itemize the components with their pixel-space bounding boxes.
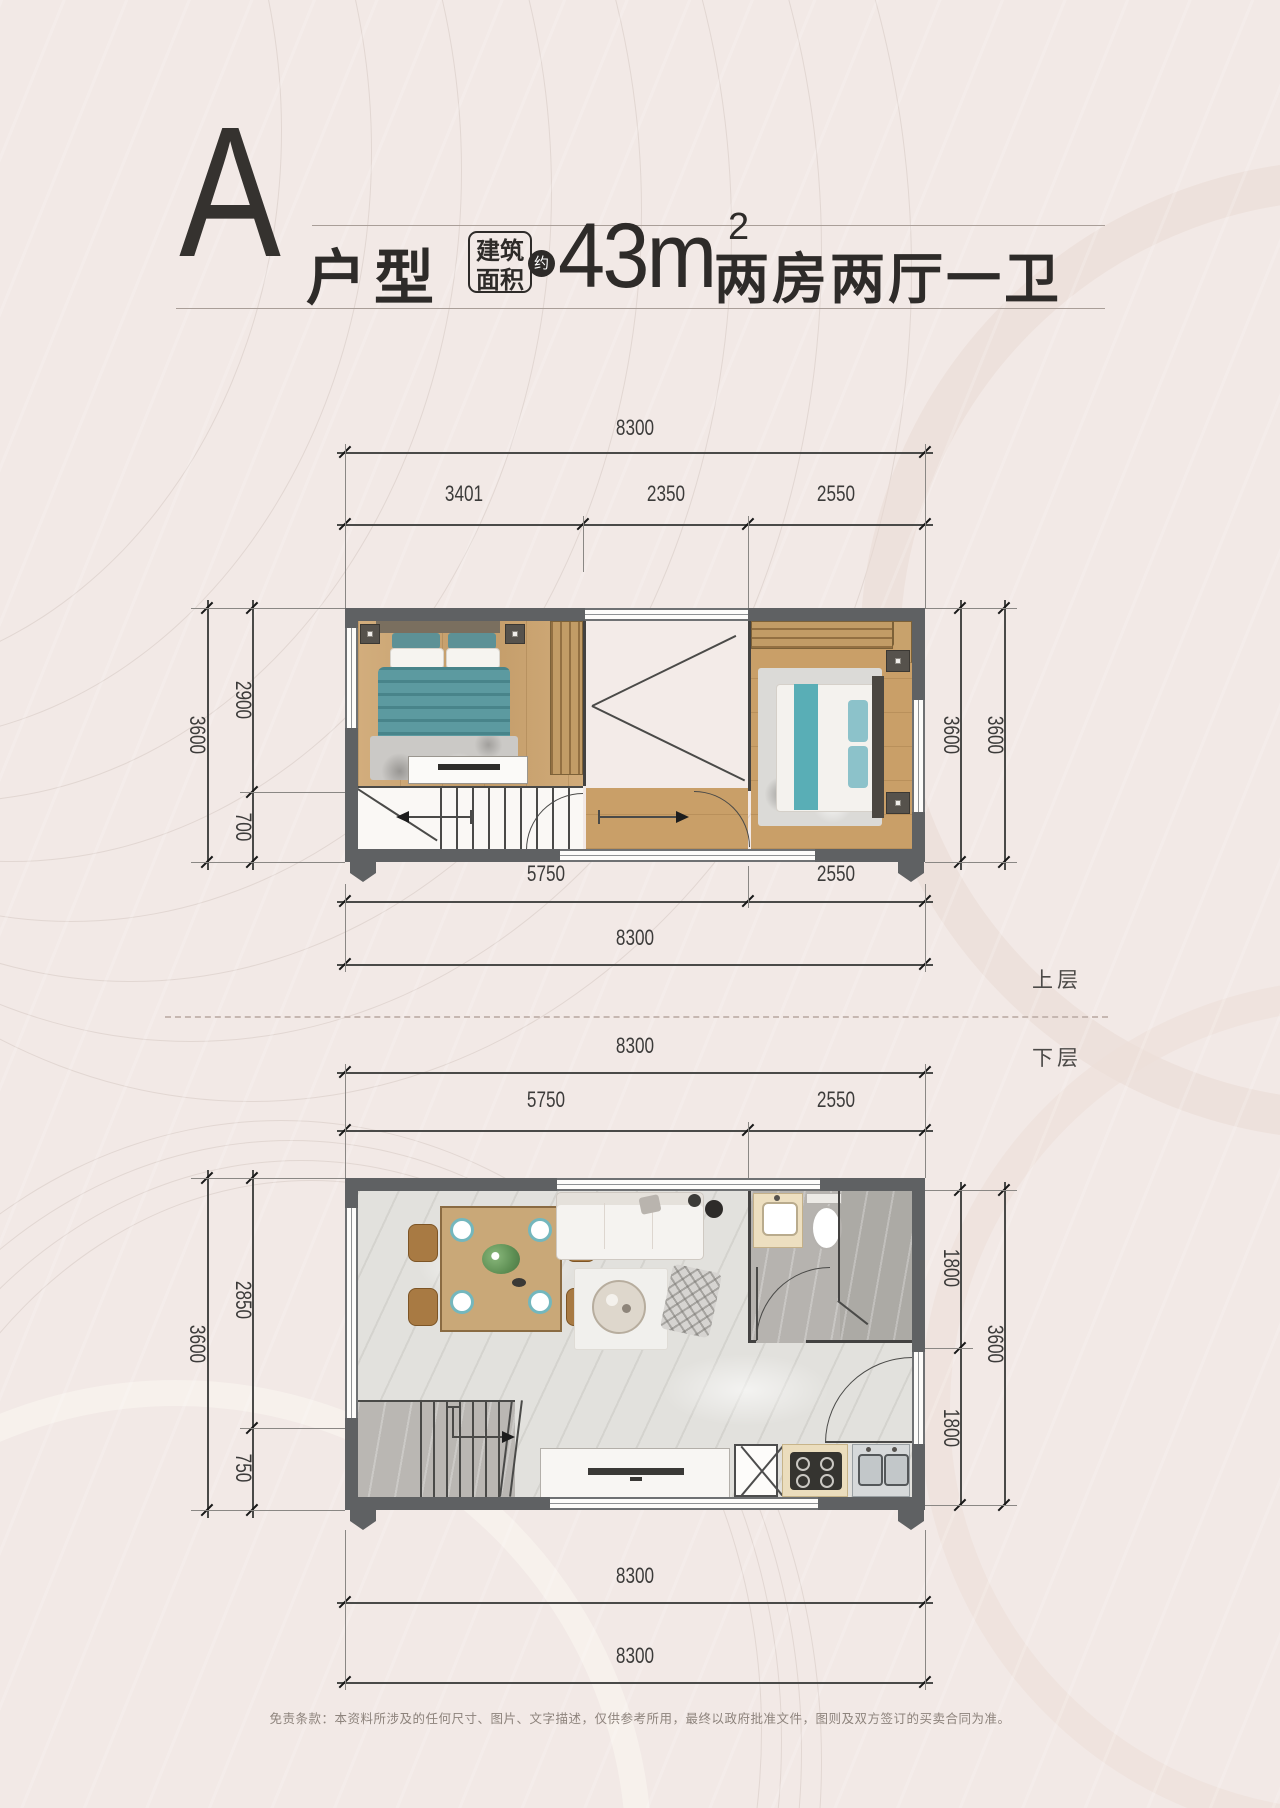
sofa [556,1192,704,1260]
disclaimer: 免责条款：本资料所涉及的任何尺寸、图片、文字描述，仅供参考所用，最终以政府批准文… [269,1708,1010,1727]
bed1-duvet [378,667,510,743]
upper-void-area [586,621,748,788]
dim-upper-seg1: 3401 [445,481,483,507]
hall-direction-line [600,816,678,818]
shower-partition [838,1191,840,1301]
area-badge-line2: 面积 [470,266,530,295]
plate [450,1218,474,1242]
dim-upper-bottom-total: 8300 [616,925,654,951]
nightstand [886,792,910,814]
nightstand [886,650,910,672]
area-value: 43m [558,210,714,302]
nightstand [505,624,525,644]
lower-level-label: 下层 [1032,1042,1082,1072]
wardrobe [550,621,583,775]
dining-chair [408,1224,438,1262]
table-flowers [482,1244,520,1274]
unit-type-label: 户型 [306,230,442,317]
approx-circle: 约 [528,250,555,277]
dim-upper-seg3: 2550 [817,481,855,507]
plate [528,1290,552,1314]
bed2-runner [794,684,818,810]
coffee-table [592,1280,646,1334]
shower-floor [840,1191,912,1343]
faucet-icon [774,1195,780,1201]
bed1-pillow [448,633,496,649]
kitchen-sink [852,1444,910,1497]
toilet-tank [806,1193,842,1204]
tv-stand [630,1477,642,1481]
decor-plant [688,1194,701,1207]
lower-stairs-floor [358,1402,515,1497]
stair-direction-line [408,816,470,818]
area-badge-line1: 建筑 [470,237,530,266]
table-dish [512,1278,526,1287]
dim-lower-top-right: 2550 [817,1087,855,1113]
plate [450,1290,474,1314]
layout-label: 两房两厅一卫 [714,234,1062,314]
hall-arrow-icon [676,811,689,823]
dim-upper-bottom-right: 2550 [817,861,855,887]
closet [751,621,893,649]
bed2-headboard [872,676,884,818]
bed2-pillow [848,746,868,788]
stair-arrow-icon [502,1431,515,1443]
bed1-pillow-white [446,648,500,669]
dining-chair [408,1288,438,1326]
dim-upper-bottom-left: 5750 [527,861,565,887]
tv-icon [588,1468,684,1475]
sink-basin [762,1202,798,1236]
area-badge: 建筑 面积 [468,231,532,293]
refrigerator [734,1444,778,1497]
entry-door-leaf [825,1441,912,1443]
side-table [705,1200,723,1218]
stair-arrow-icon [396,811,409,823]
level-divider [165,1016,1108,1018]
bed1-pillow [392,633,440,649]
stove [790,1452,842,1490]
plate [528,1218,552,1242]
dim-lower-top-total: 8300 [616,1033,654,1059]
bed1-pillow-white [390,648,444,669]
dim-upper-top-total: 8300 [616,415,654,441]
floorplan-poster: A 户型 建筑 面积 约 43m2 两房两厅一卫 8300 3401 2350 … [0,0,1280,1808]
upper-level-label: 上层 [1032,964,1082,994]
unit-letter: A [179,100,281,286]
bed2-pillow [848,700,868,742]
dim-lower-top-left: 5750 [527,1087,565,1113]
tv-console [408,756,528,784]
dim-lower-bottom-total-1: 8300 [616,1563,654,1589]
bed1-headboard [376,621,500,633]
tv-icon [438,764,500,770]
nightstand [360,624,380,644]
dim-upper-seg2: 2350 [647,481,685,507]
dim-lower-bottom-total-2: 8300 [616,1643,654,1669]
